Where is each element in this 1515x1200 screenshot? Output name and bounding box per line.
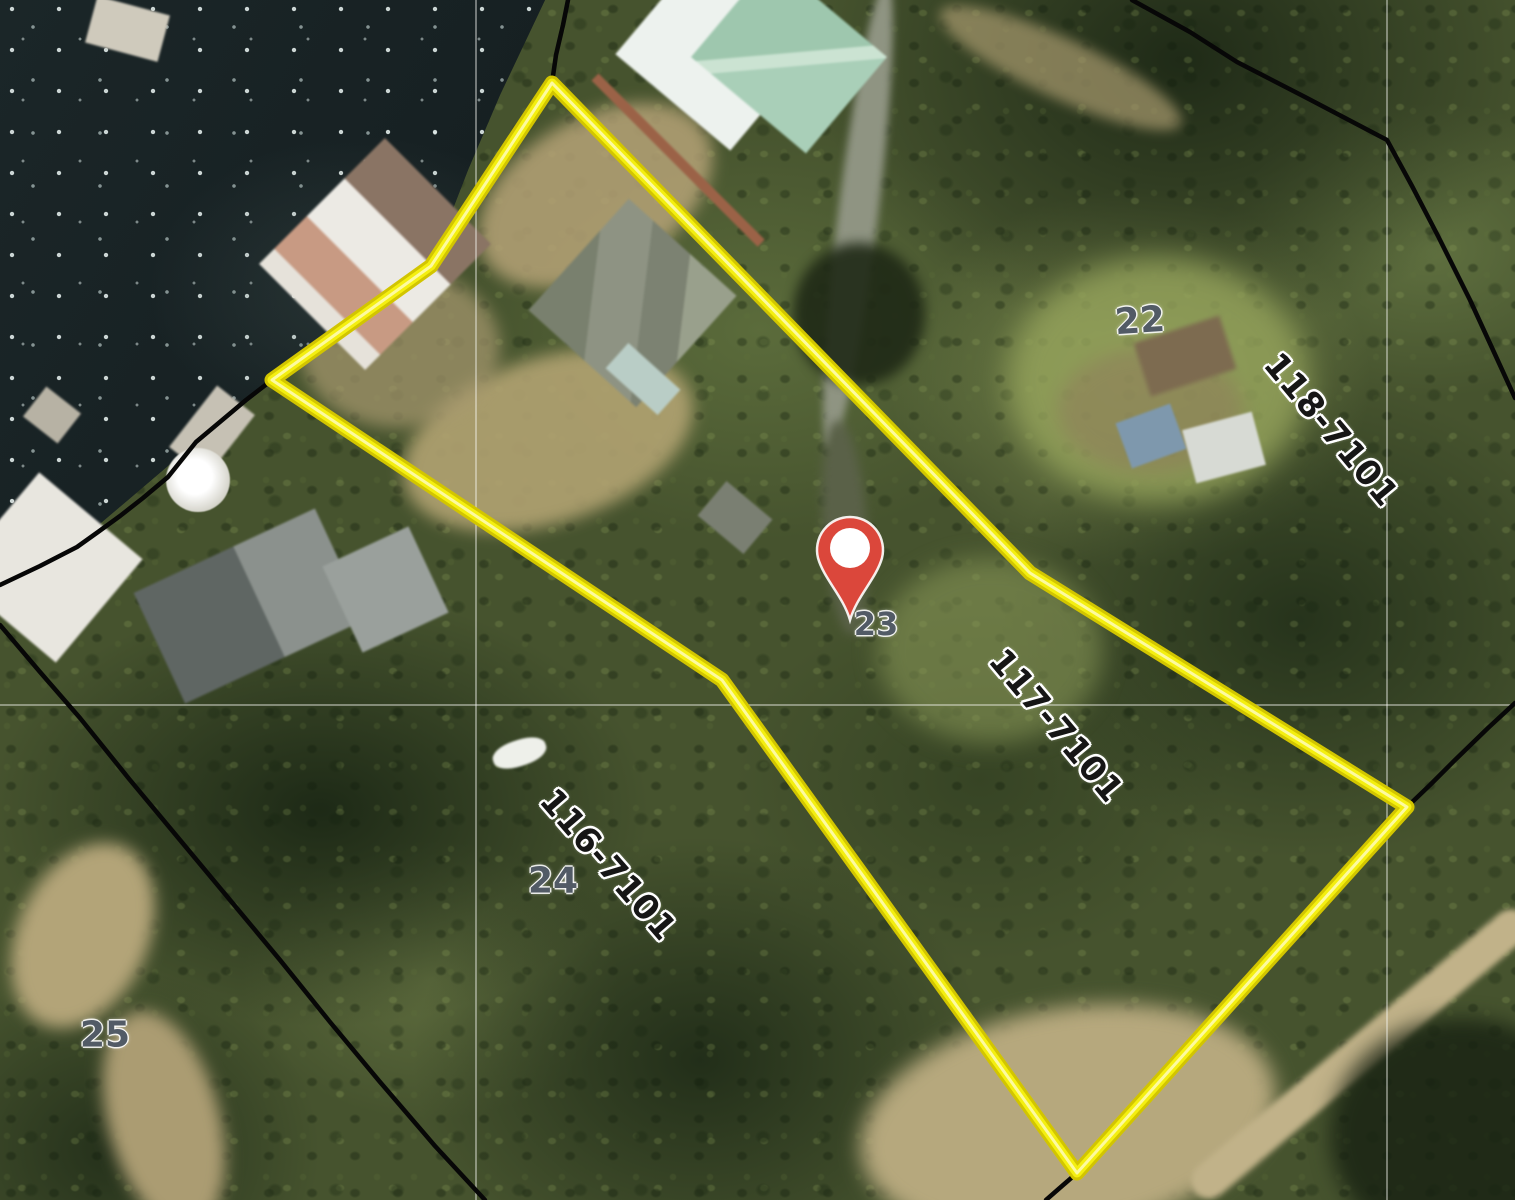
- boundary-line-east: [1407, 703, 1515, 807]
- boundary-line-northeast: [1132, 0, 1515, 398]
- lot-number-24: 24: [528, 861, 578, 902]
- parcel-overlay: [0, 0, 1515, 1200]
- map-pin[interactable]: [800, 480, 900, 630]
- aerial-map-canvas[interactable]: 118-7101 117-7101 116-7101 22 23 24 25: [0, 0, 1515, 1200]
- boundary-line-southwest: [0, 625, 485, 1200]
- lot-number-25: 25: [80, 1015, 130, 1056]
- boundary-line-west-shore: [0, 380, 272, 585]
- lot-number-22: 22: [1114, 299, 1167, 343]
- pin-center-dot: [830, 528, 870, 568]
- boundary-line-north: [552, 0, 568, 83]
